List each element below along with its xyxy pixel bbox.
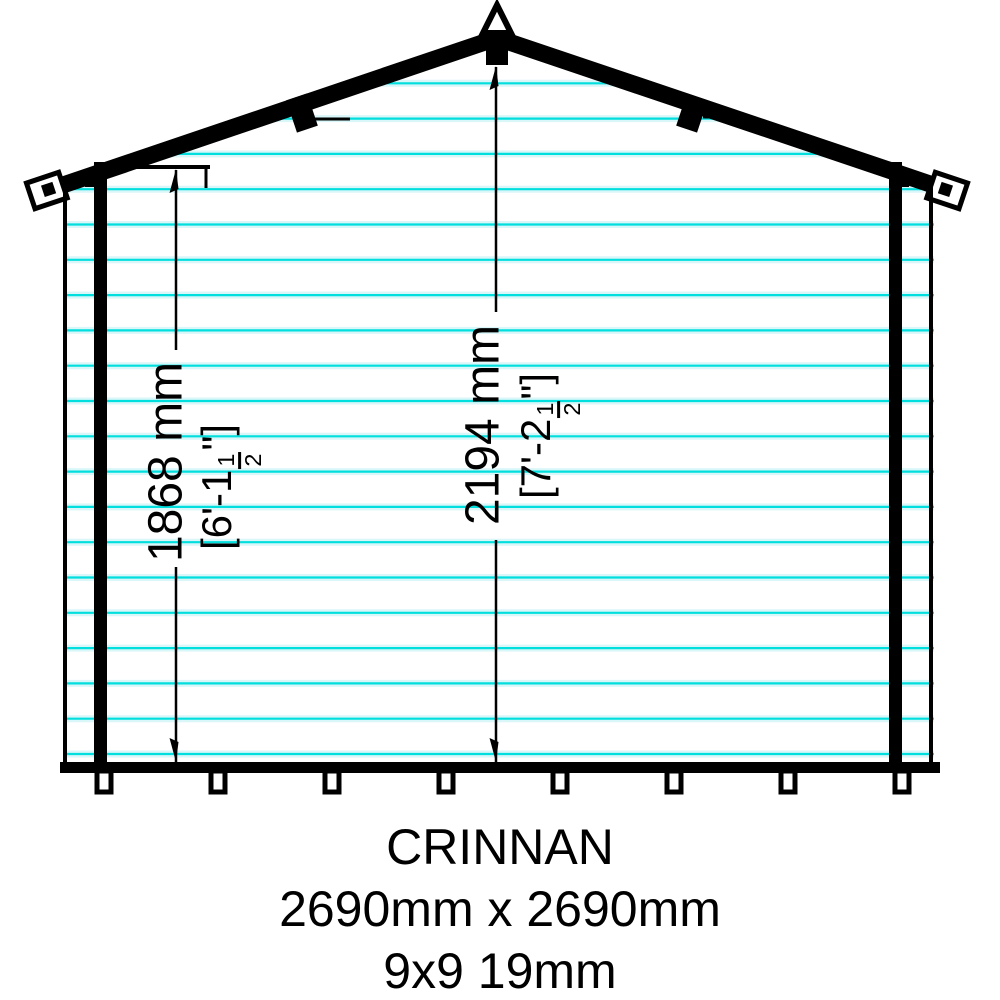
- ridge-imperial-fraction: 12: [533, 400, 584, 419]
- roof-slope-right: [497, 38, 936, 186]
- shed-elevation-diagram: 1868 mm [6'-112"] 2194 mm [7'-212"] CRIN…: [0, 0, 1000, 1000]
- eaves-height-metric-label: 1868 mm: [139, 362, 194, 562]
- eaves-height-imperial-label: [6'-112"]: [193, 424, 265, 550]
- floor-bearer: [895, 771, 909, 792]
- floor-bearer: [325, 771, 339, 792]
- wall-outer-line-right: [929, 178, 933, 764]
- floor-base: [60, 762, 940, 773]
- roof-finial: [483, 5, 511, 33]
- floor-bearer: [211, 771, 225, 792]
- ridge-imperial-prefix: [7'-2: [512, 419, 559, 499]
- footprint-dimensions: 2690mm x 2690mm: [0, 878, 1000, 940]
- corner-post-left: [94, 162, 107, 764]
- eaves-imperial-prefix: [6'-1: [193, 470, 240, 550]
- ridge-imperial-suffix: "]: [512, 373, 559, 400]
- floor-bearer: [667, 771, 681, 792]
- spec-text: 9x9 19mm: [0, 940, 1000, 1000]
- floor-bearer: [439, 771, 453, 792]
- corner-post-right: [889, 162, 902, 764]
- wallplate-bracket-right: [899, 171, 909, 187]
- floor-bearers: [97, 771, 909, 792]
- ridge-height-metric-label: 2194 mm: [456, 325, 511, 525]
- roof-slope-left: [60, 38, 497, 186]
- ridge-height-imperial-label: [7'-212"]: [512, 373, 584, 499]
- eaves-imperial-fraction: 12: [214, 451, 265, 470]
- wallplate-bracket-left: [85, 171, 95, 187]
- floor-bearer: [553, 771, 567, 792]
- floor-bearer: [781, 771, 795, 792]
- title-block: CRINNAN 2690mm x 2690mm 9x9 19mm: [0, 816, 1000, 1000]
- eaves-imperial-suffix: "]: [193, 424, 240, 451]
- product-name: CRINNAN: [0, 816, 1000, 878]
- fascia-left: [26, 172, 67, 208]
- floor-bearer: [97, 771, 111, 792]
- wall-outer-line-left: [63, 178, 67, 764]
